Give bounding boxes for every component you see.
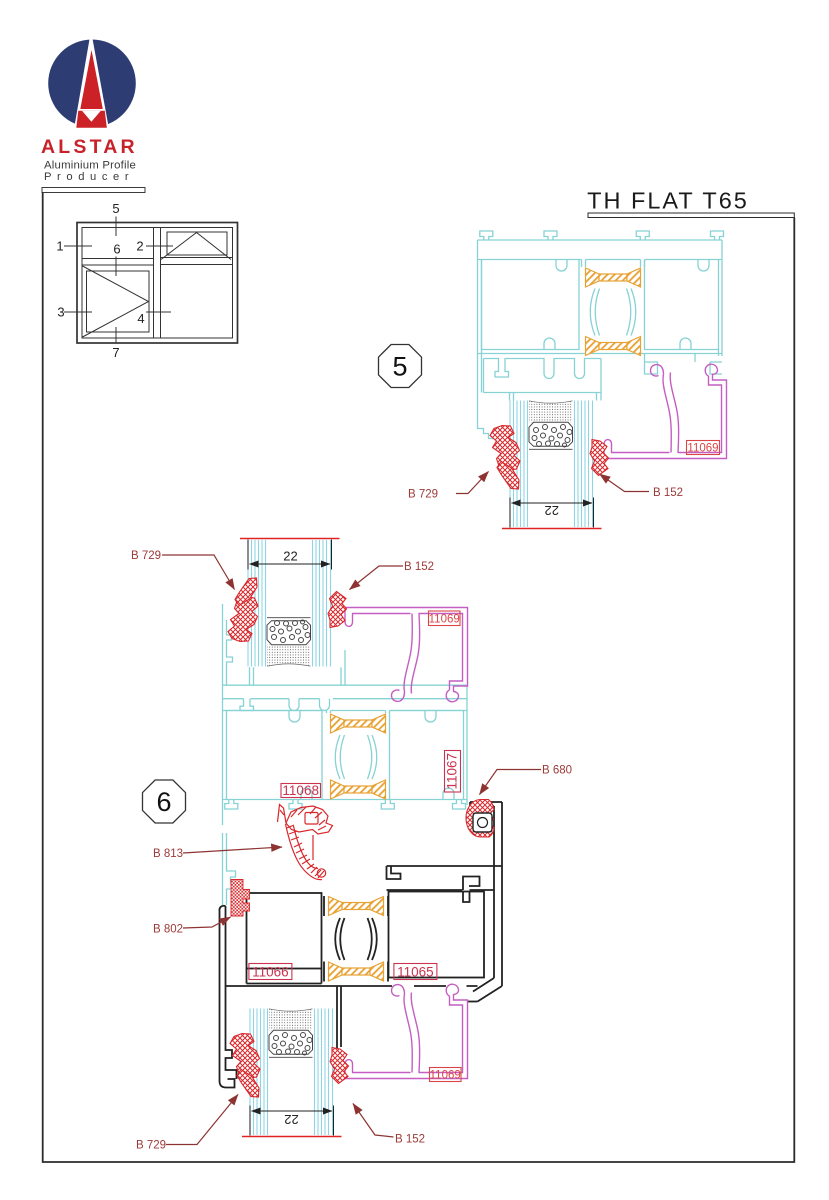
svg-text:2: 2 bbox=[136, 239, 143, 254]
svg-text:Aluminium Profile: Aluminium Profile bbox=[44, 160, 136, 172]
svg-text:1: 1 bbox=[56, 239, 63, 254]
svg-text:11069: 11069 bbox=[430, 1070, 461, 1082]
svg-text:7: 7 bbox=[112, 345, 119, 360]
svg-text:6: 6 bbox=[156, 787, 171, 817]
svg-text:11069: 11069 bbox=[429, 614, 460, 626]
svg-text:B 680: B 680 bbox=[542, 765, 572, 777]
svg-text:B 729: B 729 bbox=[136, 1140, 166, 1152]
svg-text:B 813: B 813 bbox=[153, 848, 183, 860]
svg-text:22: 22 bbox=[283, 549, 297, 564]
svg-text:3: 3 bbox=[57, 305, 64, 320]
svg-text:5: 5 bbox=[112, 201, 119, 216]
svg-text:ALSTAR: ALSTAR bbox=[41, 136, 138, 158]
svg-text:22: 22 bbox=[544, 503, 558, 518]
svg-text:B 152: B 152 bbox=[653, 487, 683, 499]
svg-text:11066: 11066 bbox=[252, 965, 289, 980]
svg-text:5: 5 bbox=[392, 352, 407, 382]
svg-text:TH FLAT T65: TH FLAT T65 bbox=[587, 188, 749, 214]
svg-text:B 802: B 802 bbox=[153, 924, 183, 936]
svg-text:11068: 11068 bbox=[282, 783, 319, 798]
svg-text:B 152: B 152 bbox=[404, 561, 434, 573]
svg-text:11065: 11065 bbox=[397, 965, 434, 980]
svg-text:11069: 11069 bbox=[687, 443, 718, 455]
svg-text:B 729: B 729 bbox=[131, 550, 161, 562]
svg-text:B 729: B 729 bbox=[408, 489, 438, 501]
svg-text:22: 22 bbox=[284, 1112, 298, 1127]
svg-text:6: 6 bbox=[113, 242, 120, 257]
svg-text:B 152: B 152 bbox=[395, 1134, 425, 1146]
svg-text:Producer: Producer bbox=[44, 171, 134, 183]
svg-text:4: 4 bbox=[137, 311, 144, 326]
svg-text:11067: 11067 bbox=[445, 753, 460, 790]
